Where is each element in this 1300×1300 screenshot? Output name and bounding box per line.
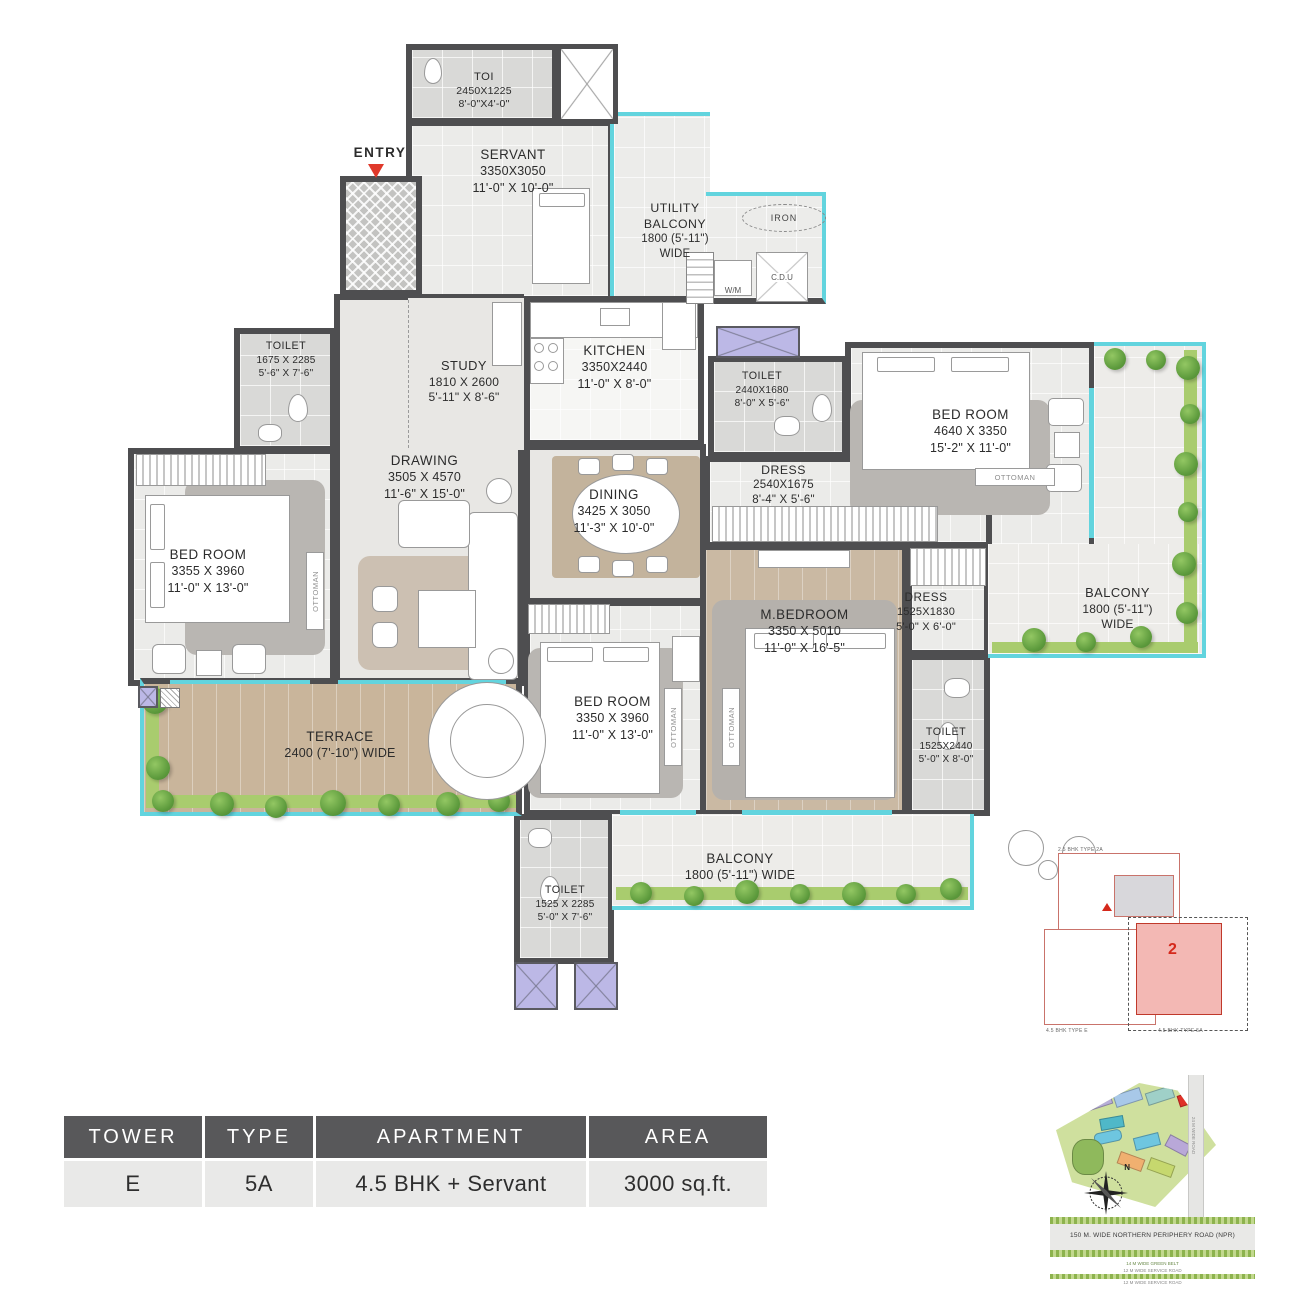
- compass-icon: N: [1080, 1167, 1132, 1219]
- plant: [152, 790, 174, 812]
- room-dim-ft: 11'-0" X 13'-0": [535, 727, 690, 743]
- room-dim-ft: 15'-2" X 11'-0": [878, 440, 1063, 456]
- info-table-value-row: E 5A 4.5 BHK + Servant 3000 sq.ft.: [64, 1161, 767, 1207]
- label-dress-2: DRESS 1525X1830 5'-0" X 6'-0": [870, 590, 982, 634]
- room-dim-ft: 11'-0" X 16'-5": [722, 640, 887, 656]
- label-entry: ENTRY: [336, 144, 424, 162]
- chair-bedroom-left-2: [232, 644, 266, 674]
- label-dress-1: DRESS 2540X1675 8'-4" X 5'-6": [716, 462, 851, 508]
- room-name: BED ROOM: [878, 406, 1063, 423]
- npr-green-strip-bottom: [1050, 1250, 1255, 1257]
- room-dim: WIDE: [620, 247, 730, 262]
- kitchen-sink: [600, 308, 630, 326]
- plant: [378, 794, 400, 816]
- window-bedroom-right: [1089, 388, 1094, 538]
- wardrobe-dress-1: [712, 506, 938, 542]
- room-dim-mm: 3425 X 3050: [548, 503, 680, 519]
- keyplan-unit-number: 2: [1168, 941, 1177, 959]
- basin-toilet-4: [528, 828, 552, 848]
- room-name: BALCONY: [1035, 585, 1200, 602]
- pillow: [603, 647, 649, 662]
- room-dim-mm: 2440X1680: [714, 384, 810, 397]
- plant: [1104, 348, 1126, 370]
- window-terrace-1: [170, 680, 310, 684]
- site-building: [1133, 1132, 1161, 1151]
- wc-toilet-2: [812, 394, 832, 422]
- site-map: 24 M WIDE ROAD N 150 M. WIDE NORTHERN PE…: [1050, 1075, 1255, 1287]
- dining-chair: [646, 556, 668, 573]
- header-type: TYPE: [205, 1116, 313, 1158]
- plant: [1172, 552, 1196, 576]
- site-building: [1113, 1087, 1144, 1108]
- room-name: TOILET: [518, 884, 612, 898]
- site-building: [1145, 1085, 1176, 1106]
- plant: [940, 878, 962, 900]
- room-dim-mm: 1525X1830: [870, 605, 982, 619]
- plant: [842, 882, 866, 906]
- iron-board: IRON: [742, 204, 826, 232]
- pillow: [547, 647, 593, 662]
- dining-chair: [612, 560, 634, 577]
- header-apartment: APARTMENT: [316, 1116, 586, 1158]
- plant: [630, 882, 652, 904]
- side-table-drawing-2: [488, 648, 514, 674]
- room-dim-mm: 3505 X 4570: [342, 469, 507, 485]
- ottoman-label: OTTOMAN: [727, 707, 736, 748]
- label-toilet-3: TOILET 1525X2440 5'-0" X 8'-0": [892, 726, 1000, 766]
- entry-arrow-icon: [368, 164, 384, 178]
- room-dim: 1800 (5'-11"): [620, 232, 730, 247]
- entry-foyer: [340, 176, 422, 296]
- label-terrace: TERRACE 2400 (7'-10") WIDE: [235, 728, 445, 762]
- room-dim-mm: 3350X3050: [438, 163, 588, 179]
- room-dim-ft: 5'-0" X 6'-0": [870, 620, 982, 634]
- wm-label: W/M: [725, 286, 741, 295]
- room-dim-mm: 4640 X 3350: [878, 423, 1063, 439]
- room-name: TOILET: [714, 370, 810, 384]
- service-road-label-2: 12 M WIDE SERVICE ROAD: [1050, 1280, 1255, 1285]
- room-name: UTILITY: [620, 200, 730, 216]
- room-dim-mm: 1525X2440: [892, 740, 1000, 753]
- room-dim-ft: 8'-0" X 5'-6": [714, 397, 810, 410]
- header-tower: TOWER: [64, 1116, 202, 1158]
- entry-text: ENTRY: [336, 144, 424, 162]
- shaft-bottom-1: [514, 962, 558, 1010]
- room-dim: 2400 (7'-10") WIDE: [235, 745, 445, 761]
- service-road-label-1: 12 M WIDE SERVICE ROAD: [1050, 1268, 1255, 1273]
- iron-label: IRON: [771, 213, 798, 223]
- pillow: [150, 504, 165, 550]
- site-side-road: 24 M WIDE ROAD: [1188, 1075, 1204, 1223]
- value-tower: E: [64, 1161, 202, 1207]
- room-name: DINING: [548, 486, 680, 503]
- keyplan-marker-icon: [1102, 903, 1112, 911]
- room-dim-mm: 2450X1225: [426, 85, 542, 99]
- green-belt-label: 14 M WIDE GREEN BELT: [1050, 1261, 1255, 1266]
- plant: [684, 886, 704, 906]
- pouf-drawing-1: [372, 586, 398, 612]
- service-green-strip: [1050, 1274, 1255, 1279]
- plant: [1176, 356, 1200, 380]
- room-name: TOILET: [238, 340, 334, 354]
- hatch-terrace-corner: [160, 688, 180, 708]
- label-bedroom-bottom: BED ROOM 3350 X 3960 11'-0" X 13'-0": [535, 693, 690, 743]
- shaft-terrace-corner: [138, 686, 158, 708]
- ottoman-tag-bedroom-left: OTTOMAN: [306, 552, 324, 630]
- value-type: 5A: [205, 1161, 313, 1207]
- plant: [436, 792, 460, 816]
- washing-machine: W/M: [714, 260, 752, 296]
- dining-chair: [612, 454, 634, 471]
- room-dim-ft: 11'-6" X 15'-0": [342, 486, 507, 502]
- keyplan-label-left: 4.5 BHK TYPE E: [1046, 1028, 1088, 1034]
- table-bedroom-left: [196, 650, 222, 676]
- room-dim-ft: 8'-4" X 5'-6": [716, 493, 851, 508]
- room-dim-ft: 11'-0" X 13'-0": [128, 580, 288, 596]
- coffee-table-drawing: [418, 590, 476, 648]
- plant: [265, 796, 287, 818]
- header-area: AREA: [589, 1116, 767, 1158]
- dresser-mbedroom: [758, 550, 850, 568]
- label-toi: TOI 2450X1225 8'-0"X4'-0": [426, 70, 542, 112]
- label-drawing: DRAWING 3505 X 4570 11'-6" X 15'-0": [342, 452, 507, 502]
- room-name: BED ROOM: [128, 546, 288, 563]
- room-dim-mm: 3355 X 3960: [128, 563, 288, 579]
- cdu-unit: C.D.U: [756, 252, 808, 302]
- keyplan-unit-gray: [1114, 875, 1174, 917]
- plant: [1146, 350, 1166, 370]
- pouf-drawing-2: [372, 622, 398, 648]
- wc-toilet-1: [288, 394, 308, 422]
- label-toilet-2: TOILET 2440X1680 8'-0" X 5'-6": [714, 370, 810, 410]
- side-road-label: 24 M WIDE ROAD: [1191, 1117, 1196, 1154]
- room-dim-mm: 3350X2440: [542, 359, 687, 375]
- wardrobe-dress-2: [910, 548, 986, 586]
- room-dim-mm: 3350 X 5010: [722, 623, 887, 639]
- room-name: KITCHEN: [542, 342, 687, 359]
- plant: [146, 756, 170, 780]
- room-name: BALCONY: [635, 850, 845, 867]
- room-name: SERVANT: [438, 146, 588, 163]
- label-kitchen: KITCHEN 3350X2440 11'-0" X 8'-0": [542, 342, 687, 392]
- label-bedroom-right: BED ROOM 4640 X 3350 15'-2" X 11'-0": [878, 406, 1063, 456]
- info-table-header-row: TOWER TYPE APARTMENT AREA: [64, 1116, 767, 1158]
- ottoman-label: OTTOMAN: [311, 571, 320, 612]
- window-bedroom-bottom: [620, 810, 696, 815]
- room-dim-ft: 11'-0" X 8'-0": [542, 376, 687, 392]
- room-name: M.BEDROOM: [722, 606, 887, 623]
- label-dining: DINING 3425 X 3050 11'-3" X 10'-0": [548, 486, 680, 536]
- plant: [320, 790, 346, 816]
- label-mbedroom: M.BEDROOM 3350 X 5010 11'-0" X 16'-5": [722, 606, 887, 656]
- room-dim-ft: 5'-0" X 8'-0": [892, 753, 1000, 766]
- room-dim-ft: 8'-0"X4'-0": [426, 98, 542, 112]
- room-name: BED ROOM: [535, 693, 690, 710]
- value-area: 3000 sq.ft.: [589, 1161, 767, 1207]
- pillow: [951, 357, 1009, 372]
- sofa-drawing-top: [398, 500, 470, 548]
- dining-chair: [578, 458, 600, 475]
- dining-chair: [578, 556, 600, 573]
- basin-toilet-1: [258, 424, 282, 442]
- room-dim-ft: 5'-11" X 8'-6": [404, 390, 524, 406]
- plant: [1174, 452, 1198, 476]
- plant: [1180, 404, 1200, 424]
- room-name: TOI: [426, 70, 542, 85]
- room-dim-mm: 1810 X 2600: [404, 375, 524, 391]
- plant: [1076, 632, 1096, 652]
- keyplan-dashed-outline: [1128, 917, 1248, 1031]
- room-name: STUDY: [404, 358, 524, 375]
- keyplan-label-right: 4.5 BHK TYPE 5A: [1158, 1028, 1203, 1034]
- site-building: [1083, 1091, 1114, 1112]
- room-name: DRESS: [716, 462, 851, 478]
- label-bedroom-left: BED ROOM 3355 X 3960 11'-0" X 13'-0": [128, 546, 288, 596]
- shaft-utility: [716, 326, 800, 358]
- wardrobe-bedroom-left: [136, 454, 266, 486]
- room-dim-ft: 5'-6" X 7'-6": [238, 367, 334, 380]
- label-study: STUDY 1810 X 2600 5'-11" X 8'-6": [404, 358, 524, 406]
- cdu-label: C.D.U: [771, 273, 793, 282]
- room-dim-mm: 3350 X 3960: [535, 710, 690, 726]
- label-toilet-4: TOILET 1525 X 2285 5'-0" X 7'-6": [518, 884, 612, 924]
- desk-bedroom-bottom: [672, 636, 700, 682]
- window-mbedroom: [742, 810, 892, 815]
- shaft-bottom-2: [574, 962, 618, 1010]
- room-dim-ft: 11'-3" X 10'-0": [548, 520, 680, 536]
- chair-bedroom-left-1: [152, 644, 186, 674]
- basin-toilet-2: [774, 416, 800, 436]
- room-dim: 1800 (5'-11") WIDE: [635, 867, 845, 883]
- room-name: BALCONY: [620, 216, 730, 232]
- basin-toilet-3: [944, 678, 970, 698]
- npr-green-strip-top: [1050, 1217, 1255, 1224]
- key-plan: 2 2.5 BHK TYPE 2A 4.5 BHK TYPE E 4.5 BHK…: [1040, 845, 1252, 1041]
- room-dim-ft: 11'-0" X 10'-0": [438, 180, 588, 196]
- room-name: DRAWING: [342, 452, 507, 469]
- room-dim: WIDE: [1035, 617, 1200, 633]
- keyplan-label-top: 2.5 BHK TYPE 2A: [1058, 847, 1103, 853]
- compass-north-label: N: [1124, 1163, 1130, 1172]
- bed-servant: [532, 188, 590, 284]
- label-utility-balcony: UTILITY BALCONY 1800 (5'-11") WIDE: [620, 200, 730, 262]
- info-table: TOWER TYPE APARTMENT AREA E 5A 4.5 BHK +…: [64, 1116, 767, 1210]
- lift-shaft-top: [556, 44, 618, 124]
- plant: [896, 884, 916, 904]
- balcony-chair-1: [1008, 830, 1044, 866]
- plant: [790, 884, 810, 904]
- dining-chair: [646, 458, 668, 475]
- ottoman-tag-mbedroom: OTTOMAN: [722, 688, 740, 766]
- room-name: TERRACE: [235, 728, 445, 745]
- label-balcony-right: BALCONY 1800 (5'-11") WIDE: [1035, 585, 1200, 633]
- room-dim-mm: 2540X1675: [716, 478, 851, 493]
- plant: [1178, 502, 1198, 522]
- pillow: [877, 357, 935, 372]
- wardrobe-bedroom-bottom: [528, 604, 610, 634]
- room-dim-ft: 5'-0" X 7'-6": [518, 911, 612, 924]
- room-name: DRESS: [870, 590, 982, 605]
- value-apartment: 4.5 BHK + Servant: [316, 1161, 586, 1207]
- label-servant: SERVANT 3350X3050 11'-0" X 10'-0": [438, 146, 588, 196]
- room-dim-mm: 1525 X 2285: [518, 898, 612, 911]
- study-desk: [492, 302, 522, 366]
- room-dim-mm: 1675 X 2285: [238, 354, 334, 367]
- room-name: TOILET: [892, 726, 1000, 740]
- floor-plan-sheet: OTTOMAN OTTOMAN OTTOMAN OTTOMAN: [0, 0, 1300, 1300]
- terrace-round-table: [450, 704, 524, 778]
- npr-road-label: 150 M. WIDE NORTHERN PERIPHERY ROAD (NPR…: [1050, 1232, 1255, 1239]
- room-dim: 1800 (5'-11"): [1035, 602, 1200, 618]
- plant: [210, 792, 234, 816]
- site-building: [1147, 1157, 1176, 1178]
- label-toilet-1: TOILET 1675 X 2285 5'-6" X 7'-6": [238, 340, 334, 380]
- label-balcony-bottom: BALCONY 1800 (5'-11") WIDE: [635, 850, 845, 884]
- site-building: [1099, 1115, 1125, 1131]
- ottoman-label: OTTOMAN: [995, 473, 1036, 482]
- ottoman-tag-bedroom-right: OTTOMAN: [975, 468, 1055, 486]
